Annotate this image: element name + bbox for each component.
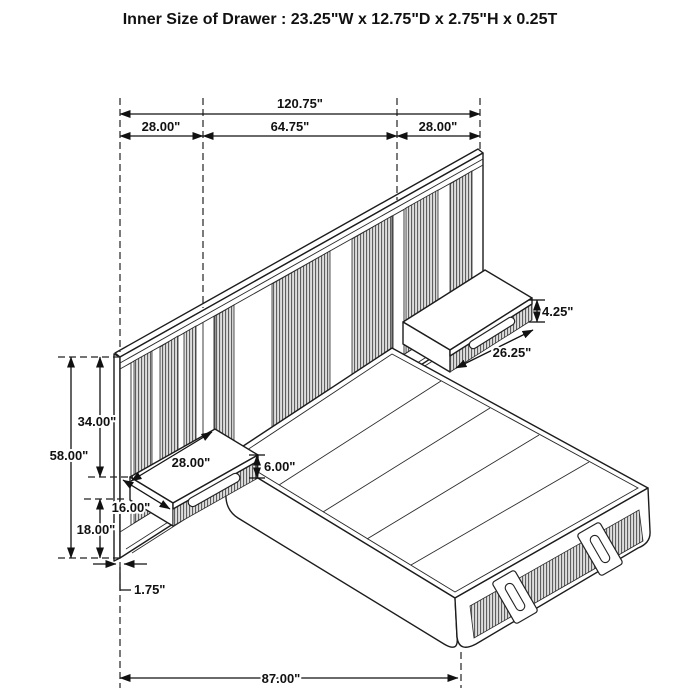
dim-right-section: 28.00" [419, 119, 458, 134]
dim-right-nightstand-height: 4.25" [542, 304, 573, 319]
dim-bed-depth: 87.00" [262, 671, 301, 686]
dimension-diagram: Inner Size of Drawer : 23.25"W x 12.75"D… [0, 0, 700, 700]
dim-headboard-height: 58.00" [50, 448, 89, 463]
dim-nightstand-height: 6.00" [264, 459, 295, 474]
dim-nightstand-width: 28.00" [172, 455, 211, 470]
dim-headboard-thickness: 1.75" [134, 582, 165, 597]
bed-line-drawing: Inner Size of Drawer : 23.25"W x 12.75"D… [0, 0, 700, 700]
dim-left-section: 28.00" [142, 119, 181, 134]
dim-top-to-nightstand: 34.00" [78, 414, 117, 429]
dim-nightstand-depth: 16.00" [112, 500, 151, 515]
drawing-title: Inner Size of Drawer : 23.25"W x 12.75"D… [123, 11, 558, 28]
dim-center-section: 64.75" [271, 119, 310, 134]
dim-nightstand-to-floor: 18.00" [77, 522, 116, 537]
dim-overall-width: 120.75" [277, 96, 323, 111]
dim-right-nightstand-width: 26.25" [493, 345, 532, 360]
